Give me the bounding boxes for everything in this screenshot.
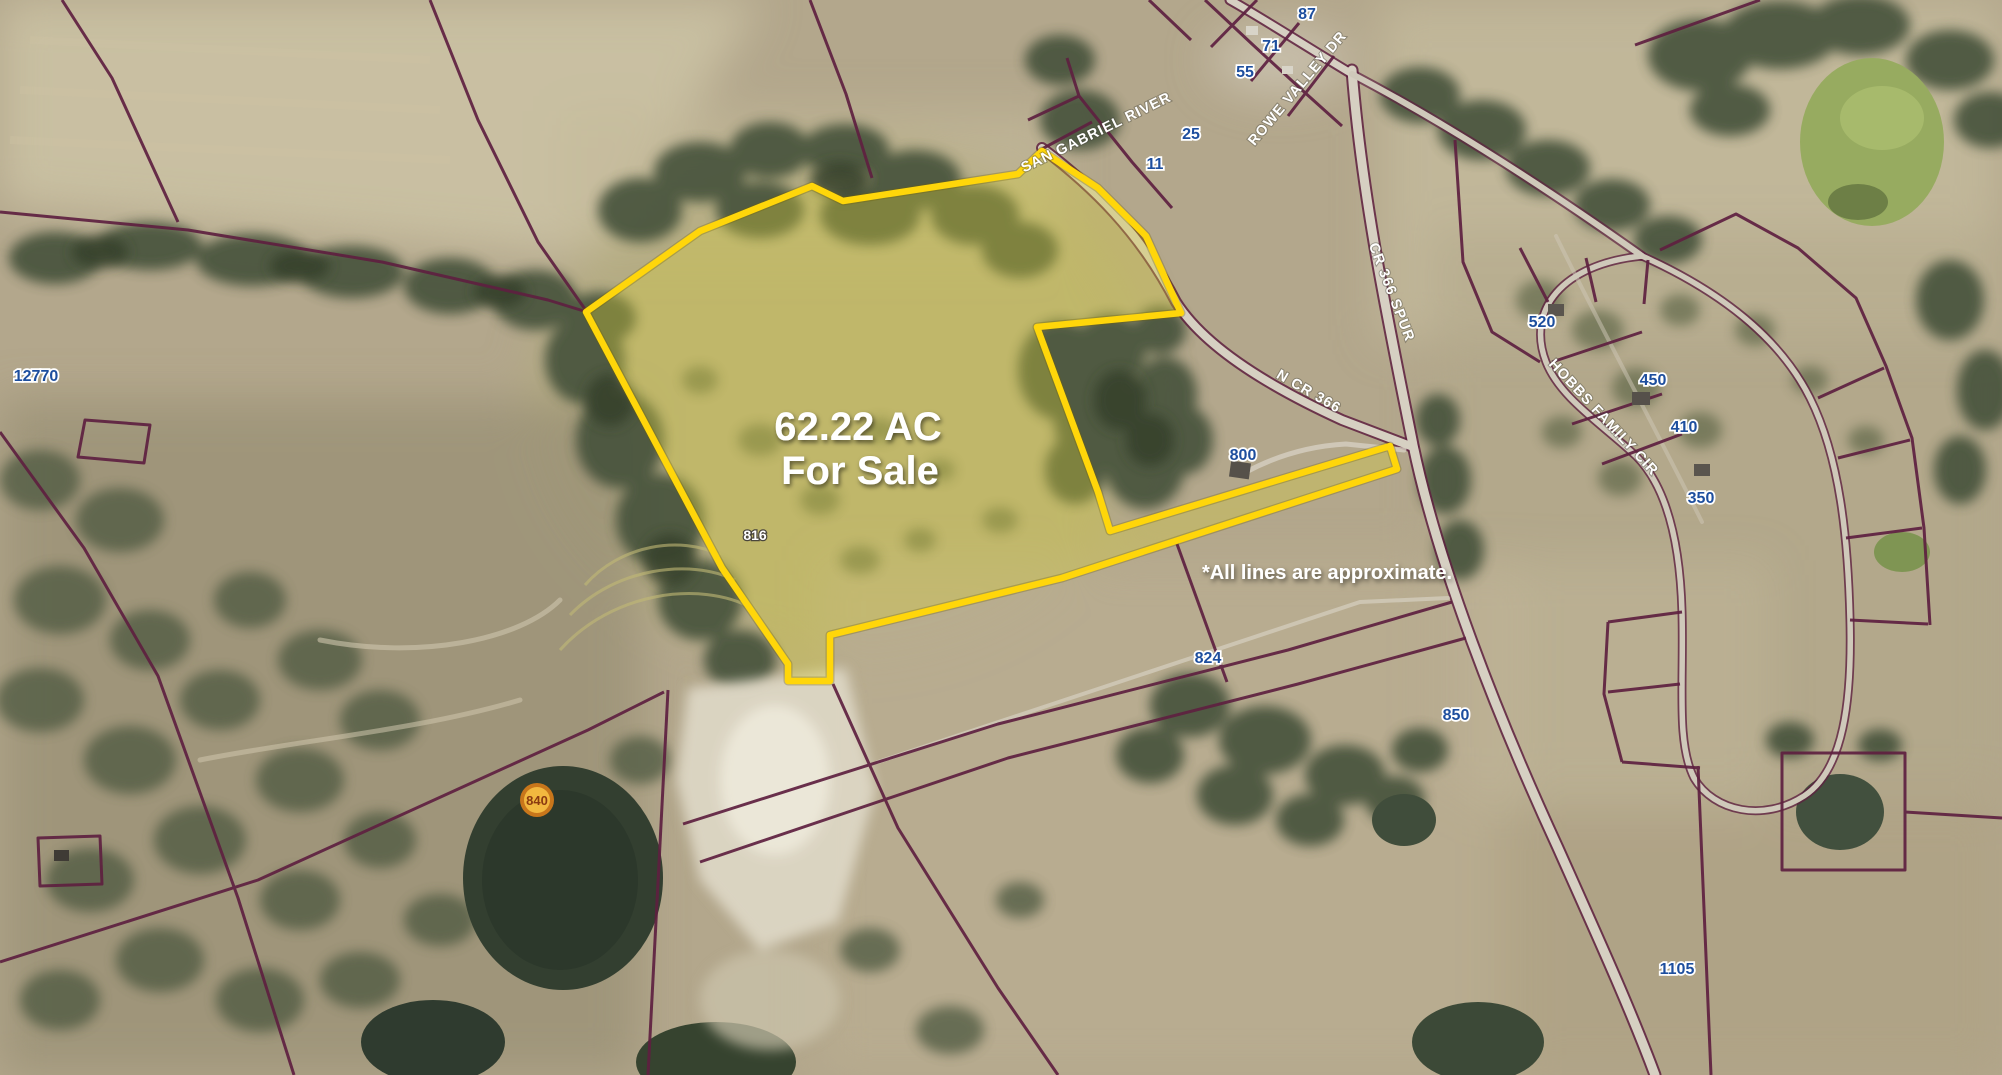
address-label: 25 xyxy=(1182,126,1200,143)
pond-right xyxy=(1796,774,1884,850)
pond-small xyxy=(1372,794,1436,846)
acreage-label: 62.22 AC xyxy=(774,405,942,449)
address-label: 410 xyxy=(1671,419,1698,436)
address-label: 71 xyxy=(1262,38,1280,55)
address-label: 11 xyxy=(1147,156,1164,173)
address-label: 450 xyxy=(1640,372,1667,389)
address-label: 520 xyxy=(1529,314,1556,331)
map-marker-840: 840 xyxy=(520,783,554,817)
address-label: 850 xyxy=(1443,707,1470,724)
address-label: 55 xyxy=(1236,64,1254,81)
address-label-816: 816 xyxy=(743,527,767,543)
satellite-map-image: 87 71 55 25 11 12770 800 824 850 520 450… xyxy=(0,0,2002,1075)
address-label: 12770 xyxy=(14,368,59,385)
address-label: 350 xyxy=(1688,490,1715,507)
for-sale-label: For Sale xyxy=(781,449,939,493)
address-label: 87 xyxy=(1298,6,1316,23)
pond-green-small xyxy=(1874,532,1930,572)
aerial-property-map: 87 71 55 25 11 12770 800 824 850 520 450… xyxy=(0,0,2002,1075)
disclaimer-label: *All lines are approximate. xyxy=(1202,562,1452,584)
address-label: 1105 xyxy=(1660,961,1695,978)
address-label: 824 xyxy=(1195,650,1222,667)
address-label: 800 xyxy=(1230,447,1257,464)
marker-value: 840 xyxy=(526,793,548,808)
